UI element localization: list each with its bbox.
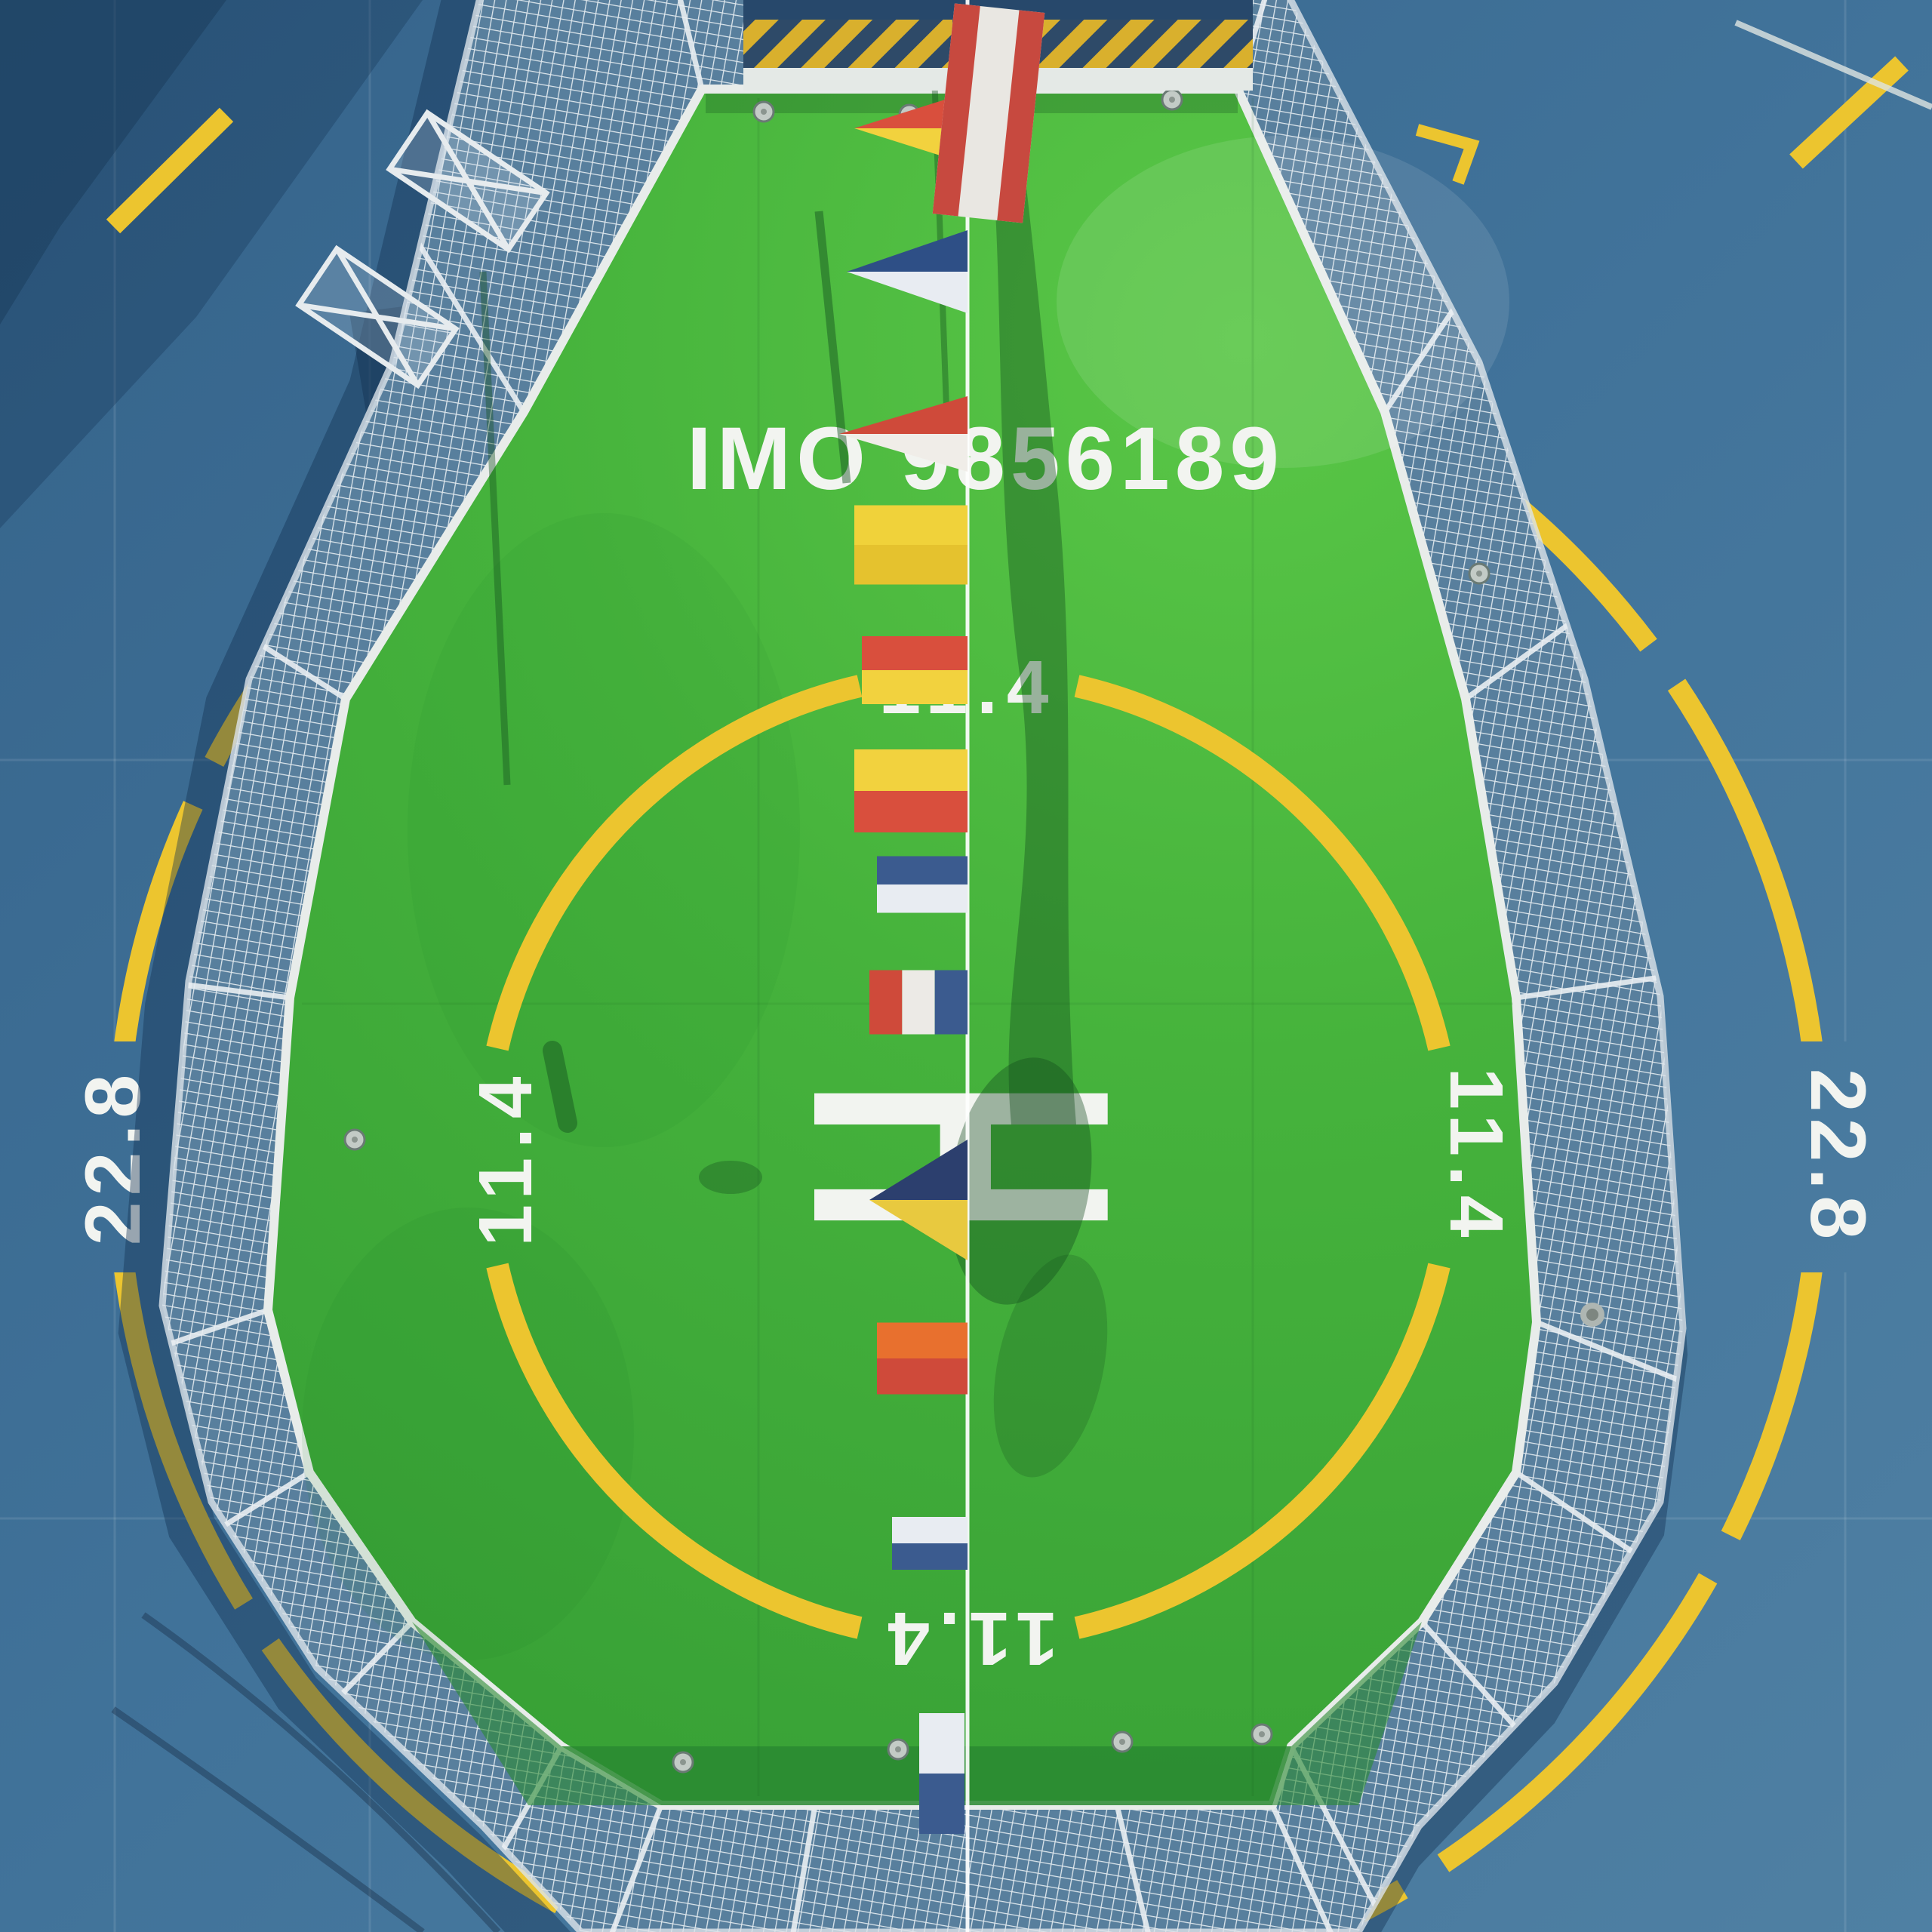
signal-flag [869, 971, 968, 1035]
outer-d-value-right: 22.8 [1794, 1069, 1881, 1245]
inner-d-value-left: 11.4 [463, 1067, 548, 1246]
tie-down-dot [1162, 90, 1182, 109]
tie-down-dot [1252, 1724, 1272, 1744]
inner-d-value-right: 11.4 [1434, 1067, 1518, 1246]
scene-svg: 22.8 22.8 IMO 9856189 11.4 11.4 11 [0, 0, 1932, 1932]
signal-flag [854, 506, 968, 585]
signal-flag [892, 1517, 968, 1570]
tie-down-dot [345, 1130, 365, 1149]
tie-down-dot [1469, 564, 1489, 583]
signal-flag [919, 1713, 964, 1834]
imo-number-marking: IMO 9856189 [687, 409, 1284, 509]
tie-down-dot [754, 102, 774, 122]
deck-vent [1580, 1303, 1604, 1327]
signal-flag [854, 749, 968, 832]
signal-flag [877, 1323, 968, 1395]
tie-down-dot [888, 1740, 908, 1759]
helideck-aerial-photo: 22.8 22.8 IMO 9856189 11.4 11.4 11 [0, 0, 1932, 1932]
tie-down-dot [1112, 1732, 1132, 1752]
signal-flag [877, 857, 968, 913]
signal-flag [862, 636, 968, 704]
tie-down-dot [673, 1752, 693, 1772]
